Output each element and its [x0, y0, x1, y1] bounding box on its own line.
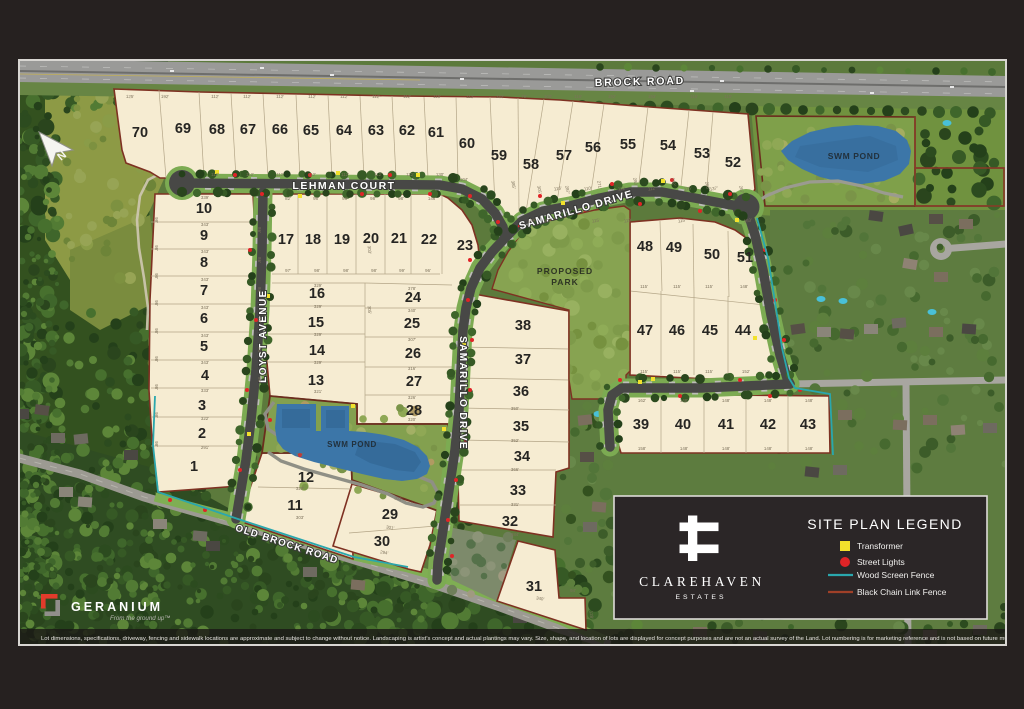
svg-text:11: 11: [287, 498, 302, 514]
svg-text:112': 112': [246, 172, 254, 177]
svg-text:112′: 112′: [403, 94, 411, 99]
svg-text:86': 86': [257, 257, 262, 263]
svg-text:35: 35: [513, 419, 529, 435]
svg-text:98': 98': [342, 196, 348, 201]
svg-text:14: 14: [309, 343, 325, 359]
svg-text:3: 3: [198, 398, 206, 414]
svg-text:50: 50: [704, 247, 720, 263]
svg-text:54: 54: [660, 138, 676, 154]
svg-text:82': 82': [285, 196, 291, 201]
svg-text:Wood Screen Fence: Wood Screen Fence: [857, 570, 935, 580]
svg-text:19: 19: [334, 232, 350, 248]
svg-text:32: 32: [502, 514, 518, 530]
svg-text:148': 148': [740, 284, 748, 289]
svg-text:162': 162': [638, 398, 646, 403]
svg-text:LOYST AVENUE: LOYST AVENUE: [258, 289, 269, 382]
svg-text:62: 62: [399, 123, 415, 139]
svg-text:86': 86': [257, 347, 262, 353]
svg-text:Transformer: Transformer: [857, 541, 903, 551]
svg-text:SWM POND: SWM POND: [828, 151, 881, 161]
svg-text:17: 17: [278, 232, 294, 248]
svg-text:26: 26: [405, 346, 421, 362]
svg-text:321': 321': [314, 389, 322, 394]
svg-text:98': 98': [154, 300, 159, 306]
svg-text:65: 65: [303, 123, 319, 139]
svg-text:60: 60: [459, 136, 475, 152]
svg-text:31: 31: [526, 579, 542, 595]
svg-text:112': 112': [374, 172, 382, 177]
svg-text:98': 98': [154, 412, 159, 418]
svg-text:148': 148': [722, 398, 730, 403]
svg-text:59: 59: [491, 148, 507, 164]
svg-text:329': 329': [314, 332, 322, 337]
svg-text:332': 332': [296, 452, 304, 457]
svg-text:366': 366': [511, 467, 519, 472]
svg-text:98': 98': [313, 196, 319, 201]
svg-text:115': 115': [640, 284, 648, 289]
svg-text:112': 112': [341, 172, 349, 177]
svg-text:158': 158': [638, 446, 646, 451]
svg-text:112': 112': [211, 172, 219, 177]
svg-text:7: 7: [200, 283, 208, 299]
svg-text:104': 104': [460, 177, 468, 182]
svg-text:329': 329': [314, 304, 322, 309]
svg-text:329': 329': [296, 486, 304, 491]
svg-text:343': 343': [201, 305, 209, 310]
svg-text:96': 96': [425, 268, 431, 273]
svg-text:152′: 152′: [608, 94, 616, 99]
svg-text:4: 4: [201, 368, 209, 384]
svg-text:15: 15: [308, 315, 324, 331]
svg-text:122′: 122′: [496, 94, 504, 99]
svg-text:343': 343': [201, 277, 209, 282]
svg-text:Lot dimensions, specifications: Lot dimensions, specifications, driveway…: [41, 636, 1024, 642]
svg-text:333': 333': [201, 388, 209, 393]
svg-text:21: 21: [391, 231, 407, 247]
svg-text:115': 115': [673, 284, 681, 289]
svg-text:86': 86': [257, 317, 262, 323]
svg-text:112′: 112′: [372, 94, 380, 99]
svg-text:115′: 115′: [433, 94, 441, 99]
svg-text:29: 29: [382, 507, 398, 523]
svg-text:305': 305': [367, 306, 373, 315]
svg-text:115': 115': [673, 369, 681, 374]
svg-text:115': 115': [705, 369, 713, 374]
svg-text:5: 5: [200, 339, 208, 355]
svg-text:GERANIUM: GERANIUM: [71, 600, 163, 614]
svg-text:303': 303': [296, 515, 304, 520]
svg-text:12: 12: [298, 470, 314, 486]
svg-text:192′: 192′: [161, 94, 169, 99]
svg-text:20: 20: [363, 231, 379, 247]
svg-text:44: 44: [735, 323, 751, 339]
svg-text:63: 63: [368, 123, 384, 139]
svg-text:1: 1: [190, 459, 198, 475]
svg-text:112′: 112′: [340, 94, 348, 99]
svg-text:37: 37: [515, 352, 531, 368]
svg-text:64: 64: [336, 123, 352, 139]
svg-text:68: 68: [209, 122, 225, 138]
svg-text:340': 340': [408, 308, 416, 313]
svg-text:112′: 112′: [243, 94, 251, 99]
svg-text:303': 303': [367, 246, 373, 255]
svg-text:98': 98': [343, 268, 349, 273]
svg-text:18: 18: [305, 232, 321, 248]
svg-text:307': 307': [408, 337, 416, 342]
svg-text:43: 43: [800, 417, 816, 433]
svg-text:112': 112': [276, 172, 284, 177]
svg-text:Black Chain Link Fence: Black Chain Link Fence: [857, 587, 947, 597]
svg-text:343': 343': [201, 222, 209, 227]
svg-text:98': 98': [154, 441, 159, 447]
svg-text:98': 98': [154, 273, 159, 279]
svg-text:48: 48: [637, 239, 653, 255]
svg-text:2: 2: [198, 426, 206, 442]
svg-text:10: 10: [196, 201, 212, 217]
svg-text:329': 329': [314, 283, 322, 288]
svg-text:BROCK ROAD: BROCK ROAD: [595, 75, 686, 89]
svg-text:99': 99': [399, 268, 405, 273]
svg-text:320': 320': [408, 417, 416, 422]
svg-text:45: 45: [702, 323, 718, 339]
svg-text:51: 51: [737, 250, 753, 266]
svg-text:148': 148': [680, 446, 688, 451]
svg-text:98': 98': [371, 268, 377, 273]
svg-text:153′: 153′: [648, 94, 656, 99]
svg-text:94': 94': [570, 588, 576, 593]
svg-text:27: 27: [406, 374, 422, 390]
svg-text:329': 329': [314, 360, 322, 365]
svg-text:148': 148': [680, 398, 688, 403]
svg-text:52: 52: [725, 155, 741, 171]
svg-text:6: 6: [200, 311, 208, 327]
svg-text:55: 55: [620, 137, 636, 153]
svg-text:33: 33: [510, 483, 526, 499]
svg-text:25: 25: [404, 316, 420, 332]
svg-text:49: 49: [666, 240, 682, 256]
svg-text:98': 98': [314, 268, 320, 273]
svg-text:LEHMAN COURT: LEHMAN COURT: [292, 180, 395, 192]
svg-text:61: 61: [428, 125, 444, 141]
svg-text:38: 38: [515, 318, 531, 334]
svg-text:130': 130': [436, 172, 444, 177]
svg-text:16: 16: [309, 286, 325, 302]
svg-text:69: 69: [175, 121, 191, 137]
svg-text:316': 316': [408, 366, 416, 371]
svg-text:339': 339': [201, 195, 209, 200]
svg-text:56: 56: [585, 140, 601, 156]
svg-text:57: 57: [556, 148, 572, 164]
svg-text:39: 39: [633, 417, 649, 433]
svg-text:98': 98': [370, 196, 376, 201]
svg-text:146': 146': [428, 196, 436, 201]
svg-text:22: 22: [421, 232, 437, 248]
svg-text:41: 41: [718, 417, 734, 433]
svg-text:From the ground up™: From the ground up™: [110, 615, 171, 622]
svg-text:24: 24: [405, 290, 421, 306]
svg-text:322': 322': [201, 416, 209, 421]
svg-text:ESTATES: ESTATES: [676, 594, 727, 601]
svg-text:98': 98': [154, 217, 159, 223]
svg-text:112′: 112′: [466, 94, 474, 99]
svg-text:58: 58: [523, 157, 539, 173]
svg-text:148': 148': [764, 446, 772, 451]
svg-text:100′: 100′: [544, 94, 552, 99]
svg-text:PROPOSED: PROPOSED: [537, 266, 593, 276]
svg-text:42: 42: [760, 417, 776, 433]
svg-text:PARK: PARK: [551, 277, 578, 287]
svg-text:343': 343': [201, 249, 209, 254]
svg-text:46: 46: [669, 323, 685, 339]
svg-text:53: 53: [694, 146, 710, 162]
svg-text:34: 34: [514, 449, 530, 465]
svg-text:79′: 79′: [521, 94, 527, 99]
svg-text:326': 326': [408, 395, 416, 400]
svg-text:SWM POND: SWM POND: [327, 440, 377, 449]
svg-text:36: 36: [513, 384, 529, 400]
svg-text:112′: 112′: [276, 94, 284, 99]
svg-text:98': 98': [154, 245, 159, 251]
svg-text:9: 9: [200, 228, 208, 244]
svg-text:30: 30: [374, 534, 390, 550]
svg-text:70: 70: [132, 125, 148, 141]
svg-text:115': 115': [640, 369, 648, 374]
svg-text:343': 343': [201, 360, 209, 365]
svg-text:86': 86': [257, 287, 262, 293]
svg-text:SITE PLAN LEGEND: SITE PLAN LEGEND: [807, 516, 962, 532]
svg-text:Street Lights: Street Lights: [857, 557, 905, 567]
svg-text:98': 98': [154, 356, 159, 362]
svg-text:378': 378': [408, 286, 416, 291]
svg-text:350': 350': [511, 406, 519, 411]
svg-text:115': 115': [705, 284, 713, 289]
svg-text:23: 23: [457, 238, 473, 254]
svg-text:47: 47: [637, 323, 653, 339]
svg-text:112′: 112′: [211, 94, 219, 99]
svg-text:86': 86': [257, 227, 262, 233]
svg-text:116′: 116′: [690, 94, 698, 99]
svg-text:97': 97': [285, 268, 291, 273]
svg-text:148': 148': [805, 446, 813, 451]
svg-text:86': 86': [257, 377, 262, 383]
svg-text:384': 384': [511, 532, 519, 537]
svg-text:40: 40: [675, 417, 691, 433]
svg-text:98': 98': [398, 196, 404, 201]
svg-text:67: 67: [240, 122, 256, 138]
svg-text:8: 8: [200, 255, 208, 271]
svg-text:148': 148': [805, 398, 813, 403]
svg-text:148': 148': [722, 446, 730, 451]
svg-text:343': 343': [201, 333, 209, 338]
svg-text:148': 148': [764, 398, 772, 403]
svg-text:112': 112': [406, 172, 414, 177]
svg-text:128': 128': [589, 611, 595, 620]
svg-text:152': 152': [742, 369, 750, 374]
svg-text:98': 98': [154, 328, 159, 334]
svg-text:112': 112': [308, 172, 316, 177]
svg-text:331': 331': [511, 502, 519, 507]
svg-text:115′: 115′: [724, 94, 732, 99]
svg-text:112′: 112′: [308, 94, 316, 99]
svg-text:SAMARILLO DRIVE: SAMARILLO DRIVE: [457, 336, 468, 450]
svg-text:13: 13: [308, 373, 324, 389]
svg-text:116′: 116′: [574, 94, 582, 99]
svg-text:66: 66: [272, 122, 288, 138]
svg-text:352': 352': [511, 438, 519, 443]
svg-text:98': 98': [154, 384, 159, 390]
svg-text:CLAREHAVEN: CLAREHAVEN: [639, 574, 765, 589]
svg-text:125′: 125′: [126, 94, 134, 99]
svg-text:291': 291': [201, 445, 209, 450]
